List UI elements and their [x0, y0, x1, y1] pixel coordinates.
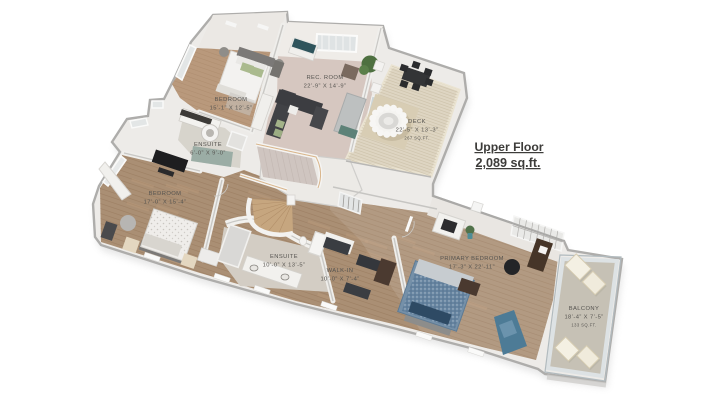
svg-text:17’-3” X 22’-11”: 17’-3” X 22’-11” — [449, 264, 495, 270]
svg-text:PRIMARY BEDROOM: PRIMARY BEDROOM — [440, 256, 504, 262]
svg-text:10’-0” X 13’-5”: 10’-0” X 13’-5” — [263, 262, 306, 268]
svg-text:REC. ROOM: REC. ROOM — [306, 75, 343, 81]
svg-text:BEDROOM: BEDROOM — [215, 97, 248, 103]
svg-text:18’-4” X 7’-5”: 18’-4” X 7’-5” — [564, 314, 603, 320]
svg-text:BEDROOM: BEDROOM — [149, 191, 182, 197]
svg-text:22’-5” X 13’-3”: 22’-5” X 13’-3” — [396, 127, 439, 133]
svg-text:2,089 sq.ft.: 2,089 sq.ft. — [475, 156, 540, 170]
svg-text:17’-0” X 15’-4”: 17’-0” X 15’-4” — [144, 199, 187, 205]
svg-text:10’-0” X 7’-4”: 10’-0” X 7’-4” — [320, 276, 359, 282]
svg-text:6’-0” X 9’-0”: 6’-0” X 9’-0” — [190, 150, 225, 156]
svg-text:ENSUITE: ENSUITE — [270, 254, 298, 260]
svg-text:WALK-IN: WALK-IN — [327, 268, 354, 274]
svg-text:15’-1” X 12’-5”: 15’-1” X 12’-5” — [210, 105, 253, 111]
svg-text:267 SQ.FT.: 267 SQ.FT. — [404, 136, 429, 141]
svg-text:BALCONY: BALCONY — [569, 306, 600, 312]
svg-text:Upper Floor: Upper Floor — [474, 140, 543, 154]
svg-text:133 SQ.FT.: 133 SQ.FT. — [571, 323, 596, 328]
svg-text:DECK: DECK — [408, 119, 426, 125]
svg-text:22’-9” X 14’-9”: 22’-9” X 14’-9” — [304, 83, 347, 89]
svg-text:ENSUITE: ENSUITE — [194, 142, 222, 148]
